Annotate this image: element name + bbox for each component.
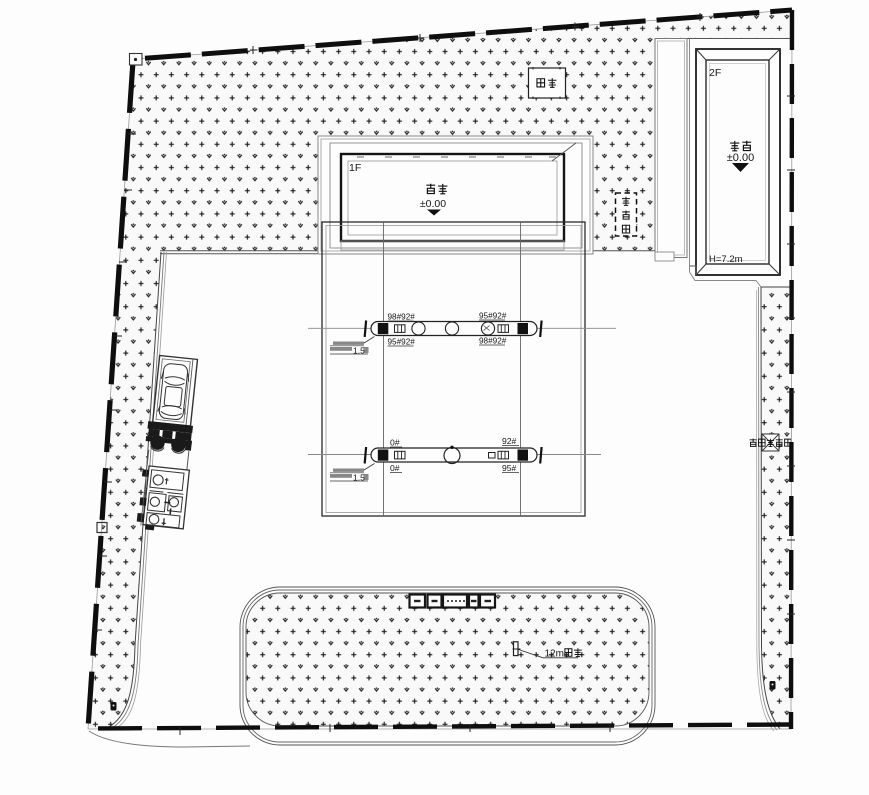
svg-text:1F: 1F: [349, 162, 361, 174]
svg-text:12m: 12m: [545, 649, 564, 660]
svg-text:98#92#: 98#92#: [479, 337, 507, 346]
svg-text:92#: 92#: [502, 436, 517, 446]
svg-text:95#92#: 95#92#: [388, 338, 416, 347]
svg-text:98#92#: 98#92#: [388, 313, 416, 322]
svg-text:2F: 2F: [709, 67, 721, 79]
svg-text:±0.00: ±0.00: [727, 152, 754, 164]
svg-text:0#: 0#: [390, 438, 400, 448]
svg-text:±0.00: ±0.00: [420, 198, 446, 210]
svg-text:H=7.2m: H=7.2m: [709, 254, 743, 265]
svg-text:95#92#: 95#92#: [479, 312, 507, 321]
svg-text:0#: 0#: [390, 463, 400, 473]
svg-text:95#: 95#: [502, 463, 517, 473]
